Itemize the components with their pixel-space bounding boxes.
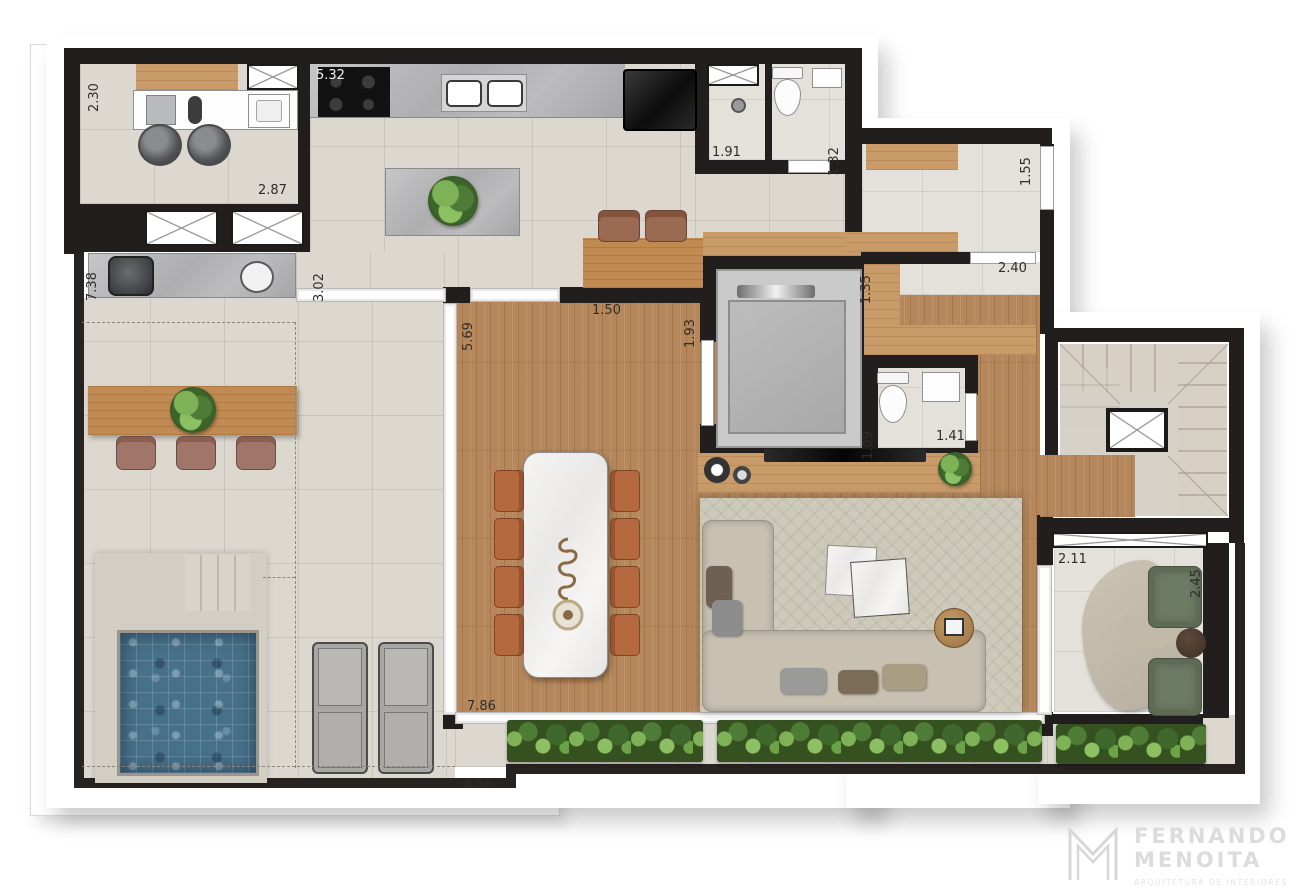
bath-cabinet [707,64,759,86]
dim-closet-depth: 1.35 [860,258,876,304]
hall-cabinet-1 [145,210,218,246]
dryer [187,124,231,166]
glass-wall-den [1037,565,1052,715]
dining-chair-l3 [494,566,524,608]
planter-2 [717,720,1042,762]
wall-corridor-stub-a [443,287,470,303]
breakfast-bar [583,238,703,288]
dim-den-depth: 2.45 [1190,552,1206,598]
dining-chair-l1 [494,470,524,512]
sink-basin-right [487,80,523,107]
decor-bowl-small [733,466,751,484]
sink-basin-left [446,80,482,107]
dim-bath-width: 1.32 [828,130,844,176]
sofa-pillow-5 [882,664,926,690]
sun-lounger-1 [312,642,368,774]
dim-shower-width: 1.91 [712,146,741,159]
logo-name-line2: MENOITA [1134,848,1300,872]
hall-bench-bottom [846,232,958,252]
projection-dash-vertical [295,322,296,768]
parapet-right [1235,543,1245,774]
wall-powder-right-a [965,355,978,395]
toilet-main [772,67,803,79]
dim-den-width: 2.11 [1058,553,1087,566]
dim-living-width: 7.86 [467,700,496,713]
elevator-door [701,340,714,426]
lounger-2-backrest [384,648,428,706]
dining-chair-r1 [610,470,640,512]
elevator-handrail [737,285,815,298]
laundry-sink [248,94,290,128]
lounger-2-seat [384,712,428,768]
architect-logo: FERNANDO MENOITA ARQUITETURA DE INTERIOR… [1058,816,1300,892]
lounger-1-backrest [318,648,362,706]
round-sink [240,261,274,293]
dining-chair-r2 [610,518,640,560]
decor-bowl-large [704,457,730,483]
sun-lounger-2 [378,642,434,774]
dim-corridor-width: 3.02 [313,256,329,302]
corridor-shelf [703,232,861,256]
hall-cabinet-2 [231,210,304,246]
bar-chair-1 [598,210,640,242]
washer [138,124,182,166]
bar-stool-3 [236,436,276,470]
stair-landing-wood [1040,455,1135,517]
toilet-powder-tank [877,372,909,384]
dim-laundry-depth: 2.30 [88,66,104,112]
wall-corridor [560,287,705,303]
dining-chair-r4 [610,614,640,656]
wall-powder-top [845,355,978,368]
bath-sink [812,68,842,88]
wall-top [64,48,862,64]
shower-head [731,98,746,113]
sofa-pillow-2 [712,600,742,636]
wall-laundry-divider [298,64,310,206]
powder-door [965,393,977,441]
wall-den-right [1203,543,1229,718]
parapet-left [74,252,84,788]
dim-powder-depth: 1.09 [862,414,878,460]
elevator-car [728,300,846,434]
dim-hall-width: 1.55 [1020,140,1036,186]
bar-stool-1 [116,436,156,470]
projection-dash-mid [263,577,295,578]
kitchen-double-sink [441,74,527,112]
console-plant [938,452,972,486]
wall-bath-divider [765,64,772,164]
dim-terrace-depth: 7.38 [86,255,102,301]
closet-wardrobe-bottom [864,325,1036,355]
dim-terrace-width: 5.56 [464,778,493,791]
den-wardrobe [1052,532,1208,548]
swimming-pool [117,630,259,776]
hall-bench-top [866,144,958,170]
bar-stool-2 [176,436,216,470]
sofa-pillow-4 [838,670,878,694]
dining-chair-l4 [494,614,524,656]
stair-winder-c [1168,456,1228,516]
glass-wall-west [443,303,457,715]
sofa-pillow-3 [780,668,826,694]
wall-stairs-left [1045,328,1058,455]
parapet-bottom-mid [506,764,1245,774]
logo-monogram-icon [1062,820,1124,886]
stair-winder-a [1060,344,1120,404]
powder-sink [922,372,960,402]
dim-powder-width: 1.41 [936,430,965,443]
dim-living-depth: 5.69 [462,305,478,351]
laundry-box [146,95,176,125]
projection-dash-bottom [82,766,455,767]
glass-post-den-top [1037,515,1053,565]
hall-exterior-door [1040,146,1054,210]
dim-elevator-depth: 1.93 [684,302,700,348]
dining-chair-l2 [494,518,524,560]
island-plant [428,176,478,226]
dining-chair-r3 [610,566,640,608]
detergent-bottle [188,96,202,124]
kitchen-tv [623,69,697,131]
living-tv [764,449,926,462]
table-runner-decor [546,535,590,635]
dim-corridor-length: 1.50 [592,304,621,317]
dim-kitchen-width: 5.32 [316,69,345,82]
side-table-book [944,618,964,636]
wall-bath-right [845,48,862,174]
dim-closet-width: 2.40 [998,262,1027,275]
planter-3 [1056,724,1206,764]
den-side-table [1176,628,1206,658]
pool-steps [185,555,250,611]
stair-void-shaft [1106,408,1168,452]
coffee-table-2 [850,558,910,618]
laundry-cabinet [247,64,299,90]
den-armchair-bottom [1148,658,1202,716]
wall-stairs-top [1045,328,1244,342]
projection-dash-top [82,322,295,323]
logo-name-line1: FERNANDO [1134,824,1300,848]
lounger-1-seat [318,712,362,768]
stair-winder-b [1168,344,1228,404]
floor-plan-canvas: 2.30 5.32 2.87 1.91 1.32 1.55 7.38 3.02 … [0,0,1300,894]
bar-chair-2 [645,210,687,242]
laundry-shelf [136,64,238,90]
laundry-sink-basin [256,100,282,122]
corridor-window [470,288,560,302]
bar-plant [170,387,216,433]
logo-tagline: ARQUITETURA DE INTERIORES [1134,878,1300,887]
beer-keg [108,256,154,296]
wall-stairs-right [1229,328,1244,543]
dim-laundry-width: 2.87 [258,184,287,197]
planter-1 [507,720,703,762]
wall-stairs-bottom [1045,518,1244,532]
bathroom-door [788,160,830,173]
